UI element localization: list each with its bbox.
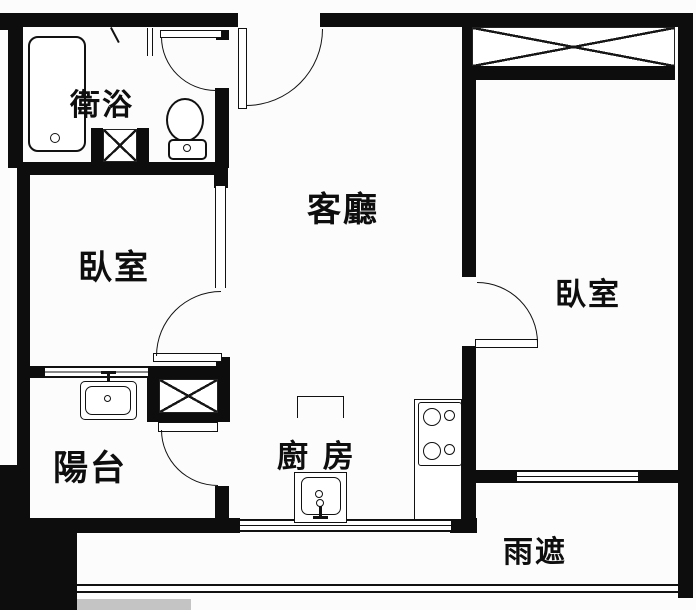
wall-bathroom-right: [215, 88, 229, 168]
toilet-button-icon: [183, 144, 191, 152]
wall-left-upper: [8, 13, 23, 168]
toilet-bowl-icon: [166, 98, 204, 142]
closet-strip-bottom-bar: [472, 66, 675, 80]
wall-left-lower: [17, 163, 30, 523]
floor-plan: 衛浴 臥室 客廳 臥室 陽台 廚 房 雨遮: [0, 0, 696, 610]
bottom-edge-shadow: [77, 599, 191, 610]
wall-balcony-door-stub: [215, 486, 229, 520]
room-label-bedroom-right: 臥室: [555, 269, 621, 314]
bathroom-partition-stub: [147, 28, 153, 56]
wall-top-right: [320, 13, 678, 27]
stove-burner-large-top: [423, 408, 441, 426]
entry-door-arc: [246, 29, 323, 106]
room-label-bathroom: 衛浴: [70, 80, 134, 124]
wall-living-bedroom-lower: [462, 346, 476, 533]
wall-balcony-bottom: [17, 518, 240, 533]
shaft-a-x-icon: [103, 129, 137, 162]
bathroom-door-arc: [161, 37, 216, 91]
wall-top-left: [8, 13, 238, 27]
room-label-kitchen: 廚 房: [277, 431, 356, 476]
stove-burner-small-top: [444, 410, 455, 421]
kitchen-sink-drain: [315, 490, 323, 498]
room-label-living-room: 客廳: [307, 182, 379, 231]
wall-right: [678, 13, 693, 598]
wall-bedroom-right-bottom-b: [637, 470, 678, 483]
window-bedroom-right-bottom: [517, 470, 638, 483]
window-bedroom-left-balcony: [45, 366, 148, 378]
shaft-b-top: [147, 366, 230, 380]
wall-living-bedroom-upper: [462, 77, 476, 277]
shaft-x-icon: [159, 379, 218, 413]
partition-bedroom-left: [215, 186, 226, 288]
bedroom-right-door-arc: [477, 282, 538, 343]
bathtub-drain-icon: [50, 133, 60, 143]
room-label-balcony: 陽台: [53, 440, 127, 491]
wall-left-outer-column: [0, 465, 17, 610]
closet-x-strip: [472, 27, 675, 67]
bedroom-left-door-arc: [156, 291, 221, 356]
kitchen-counter-outline: [297, 396, 344, 418]
shaft-a-right-post: [137, 128, 149, 162]
wall-balcony-top: [25, 366, 47, 378]
room-label-rain-shelter: 雨遮: [503, 527, 567, 571]
wall-bottom-left-block: [17, 520, 77, 610]
wall-bathroom-bottom: [23, 162, 228, 175]
stove-burner-large-bottom: [423, 442, 441, 460]
balcony-door-arc: [161, 430, 218, 486]
wall-bedroom-right-bottom-a: [476, 470, 518, 483]
stove-burner-small-bottom: [444, 444, 455, 455]
bathroom-diagonal-mark: [110, 27, 120, 43]
room-label-bedroom-left: 臥室: [78, 240, 150, 289]
rain-shelter-edge-lines: [77, 584, 678, 593]
kitchen-faucet-bar: [313, 516, 328, 519]
balcony-sink-drain: [104, 395, 111, 402]
shaft-a-left-post: [91, 128, 103, 162]
